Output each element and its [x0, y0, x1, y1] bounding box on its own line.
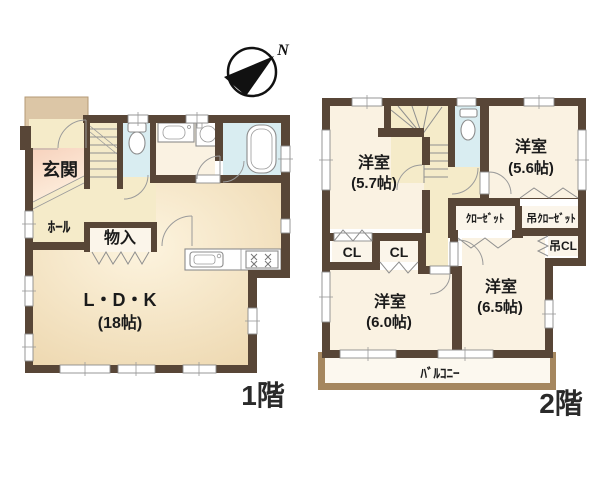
- label-hanging-closet: 吊ｸﾛｰｾﾞｯﾄ: [526, 211, 576, 225]
- label-room56-name: 洋室: [515, 137, 547, 156]
- label-hall: ﾎｰﾙ: [48, 219, 71, 236]
- compass-north-label: N: [276, 42, 290, 59]
- label-ldk-name: L・D・K: [84, 290, 157, 310]
- label-balcony: ﾊﾞﾙｺﾆｰ: [420, 366, 461, 381]
- floor1-plan: 玄関 ﾎｰﾙ 物入 L・D・K (18帖) 1階: [20, 97, 293, 411]
- label-ldk-size: (18帖): [98, 313, 142, 332]
- stairs-2f: [391, 106, 448, 183]
- label-room60-size: (6.0帖): [366, 313, 412, 331]
- label-room57-name: 洋室: [358, 153, 390, 172]
- kitchen-counter: [185, 249, 281, 270]
- label-room60-name: 洋室: [374, 292, 406, 311]
- label-storage: 物入: [104, 228, 136, 247]
- floor2-plan: 洋室 (5.7帖) 洋室 (5.6帖) 洋室 (6.0帖) 洋室 (6.5帖) …: [318, 95, 589, 419]
- compass-icon: N: [224, 42, 290, 96]
- stove-icon: [246, 251, 278, 268]
- label-genkan: 玄関: [42, 159, 78, 180]
- label-room65-name: 洋室: [485, 277, 517, 296]
- kitchen-sink-icon: [190, 252, 223, 267]
- label-cl-left: CL: [343, 244, 362, 260]
- label-hanging-cl: 吊CL: [549, 239, 577, 253]
- bathtub-icon: [247, 125, 276, 173]
- floor-plan-svg: 玄関 ﾎｰﾙ 物入 L・D・K (18帖) 1階: [0, 0, 600, 489]
- stairs-1f: [90, 121, 117, 187]
- caption-floor2: 2階: [539, 388, 583, 419]
- label-room57-size: (5.7帖): [351, 174, 397, 192]
- floor-plan-image: 玄関 ﾎｰﾙ 物入 L・D・K (18帖) 1階: [0, 0, 600, 489]
- toilet-icon-1f: [128, 123, 146, 154]
- vanity-sink-icon: [158, 123, 194, 142]
- label-room65-size: (6.5帖): [477, 298, 523, 316]
- label-room56-size: (5.6帖): [508, 159, 554, 177]
- toilet-icon-2f: [460, 109, 477, 140]
- caption-floor1: 1階: [241, 380, 285, 411]
- label-closet: ｸﾛｰｾﾞｯﾄ: [466, 211, 505, 225]
- label-cl-right: CL: [390, 244, 409, 260]
